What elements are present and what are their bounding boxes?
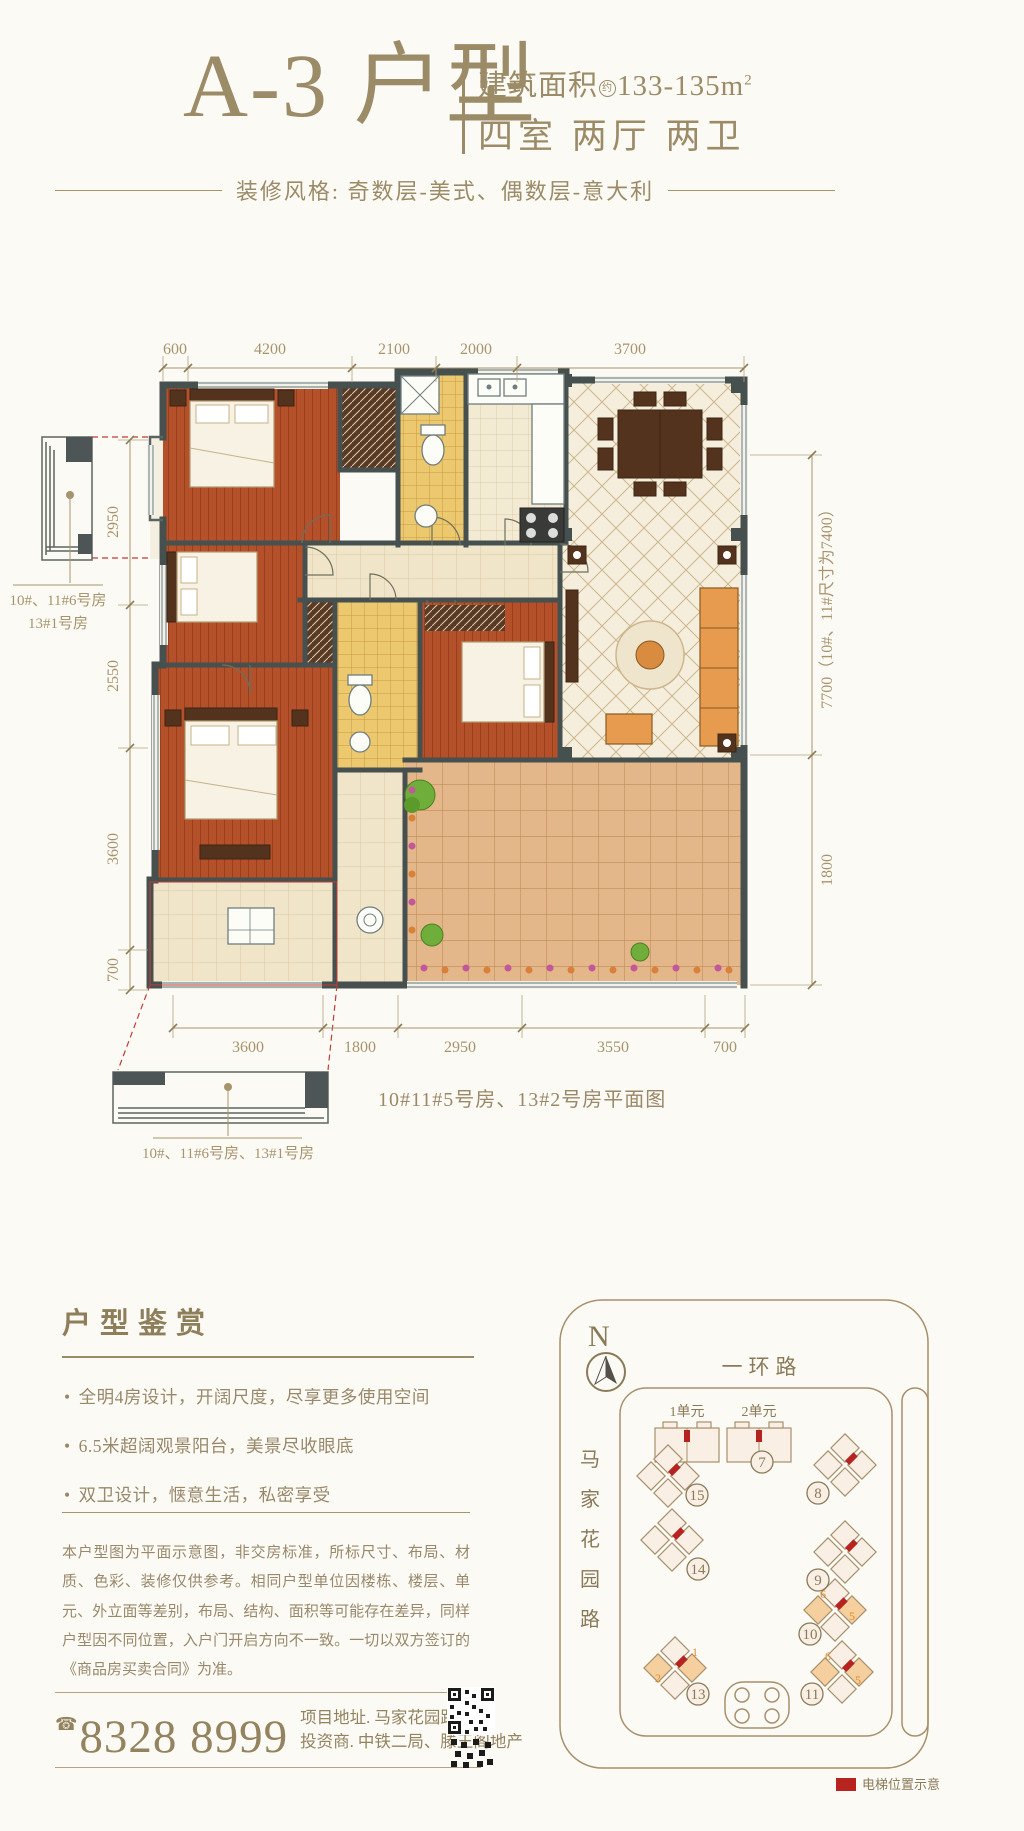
window bbox=[152, 695, 160, 850]
balcony-desk bbox=[228, 908, 274, 944]
svg-text:2100: 2100 bbox=[378, 341, 410, 358]
style-line: 装修风格: 奇数层-美式、偶数层-意大利 bbox=[236, 174, 654, 206]
pillar bbox=[731, 380, 744, 393]
armchair bbox=[606, 714, 652, 744]
corridor-floor bbox=[300, 543, 560, 600]
basin bbox=[350, 732, 370, 752]
rooms-line: 四室 两厅 两卫 bbox=[478, 108, 753, 159]
closet-2 bbox=[305, 600, 335, 665]
dim-right-sub: 1800 bbox=[819, 854, 836, 886]
svg-text:2550: 2550 bbox=[105, 660, 122, 692]
svg-text:14: 14 bbox=[691, 1562, 707, 1578]
svg-text:家: 家 bbox=[580, 1488, 600, 1511]
svg-text:3700: 3700 bbox=[614, 341, 646, 358]
footer-bar: ☎8328 8999 项目地址. 马家花园路16号 投资商. 中铁二局、滕王阁地… bbox=[55, 1692, 481, 1768]
svg-text:3600: 3600 bbox=[105, 833, 122, 865]
utility-floor bbox=[335, 770, 405, 985]
style-rule-left bbox=[55, 190, 222, 191]
review-rule bbox=[62, 1356, 474, 1358]
pillar bbox=[559, 747, 572, 760]
bay-bottom-label: 10#、11#6号房、13#1号房 bbox=[142, 1145, 314, 1162]
speaker bbox=[568, 546, 586, 564]
building-numbers: 7 15 8 14 9 10 13 11 bbox=[686, 1451, 829, 1705]
approx-circle-icon: 约 bbox=[599, 80, 616, 97]
svg-text:4200: 4200 bbox=[254, 341, 286, 358]
svg-text:马: 马 bbox=[580, 1449, 600, 1471]
tv-cabinet bbox=[566, 590, 578, 682]
legend-label: 电梯位置示意 bbox=[862, 1777, 940, 1792]
review-section: 户型鉴赏 全明4房设计，开阔尺度，尽享更多使用空间 6.5米超阔观景阳台，美景尽… bbox=[62, 1300, 474, 1531]
svg-text:5: 5 bbox=[855, 1673, 861, 1687]
area-line: 建筑面积约133-135m2 bbox=[478, 62, 753, 104]
north-indicator: N bbox=[587, 1320, 625, 1391]
floor-plan-figure: 10#、11#6号房 13#1号房 10#、11#6号房、13#1号房 10#1… bbox=[0, 290, 1024, 1180]
phone-number: ☎8328 8999 bbox=[55, 1687, 288, 1774]
svg-text:700: 700 bbox=[105, 958, 122, 982]
utility-fixtures bbox=[357, 907, 383, 933]
svg-text:花: 花 bbox=[580, 1528, 600, 1551]
svg-text:8: 8 bbox=[814, 1486, 822, 1502]
washer bbox=[357, 907, 383, 933]
pillar bbox=[731, 528, 744, 541]
sofa bbox=[700, 588, 738, 746]
bay-top-label-2: 13#1号房 bbox=[28, 615, 88, 632]
dim-right: 7700（10#、11#尺寸为7400） 1800 bbox=[750, 451, 836, 989]
svg-text:2000: 2000 bbox=[460, 341, 492, 358]
area-value: 133-135m bbox=[617, 70, 744, 102]
review-list: 全明4房设计，开阔尺度，尽享更多使用空间 6.5米超阔观景阳台，美景尽收眼底 双… bbox=[64, 1384, 474, 1507]
svg-text:路: 路 bbox=[580, 1608, 600, 1631]
header-info: 建筑面积约133-135m2 四室 两厅 两卫 bbox=[478, 62, 753, 159]
window bbox=[740, 575, 748, 745]
window bbox=[147, 445, 155, 515]
site-map: N 一环路 马 家 花 园 路 1单元 2单元 bbox=[540, 1280, 960, 1831]
elevator-legend-icon bbox=[836, 1778, 856, 1791]
svg-text:6: 6 bbox=[825, 1649, 831, 1663]
svg-text:15: 15 bbox=[690, 1488, 705, 1504]
svg-text:1800: 1800 bbox=[344, 1039, 376, 1056]
review-bullet: 双卫设计，惬意生活，私密享受 bbox=[64, 1482, 474, 1507]
speaker bbox=[718, 734, 736, 752]
svg-text:10: 10 bbox=[803, 1627, 818, 1643]
dim-right-main: 7700（10#、11#尺寸为7400） bbox=[818, 501, 836, 708]
svg-text:11: 11 bbox=[805, 1687, 819, 1703]
svg-text:2950: 2950 bbox=[105, 506, 122, 538]
unit-labels: 1单元 2单元 bbox=[670, 1404, 777, 1420]
area-label: 建筑面积 bbox=[478, 70, 598, 102]
terrace-railing bbox=[407, 981, 737, 989]
svg-text:1: 1 bbox=[692, 1645, 698, 1659]
svg-text:7: 7 bbox=[758, 1455, 766, 1471]
toilet bbox=[349, 685, 371, 715]
toilet bbox=[422, 435, 444, 465]
wardrobe-3 bbox=[425, 605, 505, 631]
svg-text:700: 700 bbox=[713, 1039, 737, 1056]
qr-code bbox=[447, 1687, 495, 1769]
title-divider bbox=[462, 66, 465, 154]
svg-text:3550: 3550 bbox=[597, 1039, 629, 1056]
svg-text:2950: 2950 bbox=[444, 1039, 476, 1056]
svg-text:1单元: 1单元 bbox=[670, 1404, 705, 1420]
window bbox=[595, 376, 725, 384]
disclaimer-text: 本户型图为平面示意图，非交房标准，所标尺寸、布局、材质、色彩、装修仅供参考。相同… bbox=[62, 1512, 470, 1685]
bay-detail-top: 10#、11#6号房 13#1号房 bbox=[10, 437, 107, 632]
plan-caption: 10#11#5号房、13#2号房平面图 bbox=[378, 1088, 666, 1111]
basin bbox=[415, 505, 437, 527]
coffee-table bbox=[636, 641, 664, 669]
dim-bottom: 3600 1800 2950 3550 700 bbox=[169, 995, 749, 1056]
review-bullet: 6.5米超阔观景阳台，美景尽收眼底 bbox=[64, 1433, 474, 1458]
window bbox=[198, 381, 328, 389]
svg-text:5: 5 bbox=[849, 1609, 855, 1623]
style-rule-right bbox=[668, 190, 835, 191]
svg-text:3600: 3600 bbox=[232, 1039, 264, 1056]
svg-text:13: 13 bbox=[691, 1687, 706, 1703]
window bbox=[740, 405, 748, 515]
review-bullet: 全明4房设计，开阔尺度，尽享更多使用空间 bbox=[64, 1384, 474, 1409]
area-sup: 2 bbox=[744, 72, 753, 88]
stove bbox=[520, 508, 564, 542]
svg-text:600: 600 bbox=[163, 341, 187, 358]
poster-page: A-3 户型 建筑面积约133-135m2 四室 两厅 两卫 装修风格: 奇数层… bbox=[0, 0, 1024, 1831]
bay-top-label-1: 10#、11#6号房 bbox=[10, 592, 107, 609]
road-top-label: 一环路 bbox=[722, 1355, 803, 1379]
svg-text:9: 9 bbox=[814, 1573, 822, 1589]
road-left-label: 马 家 花 园 路 bbox=[580, 1449, 600, 1631]
svg-text:2单元: 2单元 bbox=[742, 1404, 777, 1420]
review-title: 户型鉴赏 bbox=[62, 1300, 474, 1342]
speaker bbox=[718, 546, 736, 564]
north-label: N bbox=[588, 1320, 610, 1353]
phone-icon: ☎ bbox=[55, 1714, 78, 1734]
dim-left: 2950 2550 3600 700 bbox=[105, 436, 148, 994]
svg-text:园: 园 bbox=[580, 1569, 600, 1591]
style-row: 装修风格: 奇数层-美式、偶数层-意大利 bbox=[55, 174, 835, 206]
bay-detail-bottom: 10#、11#6号房、13#1号房 bbox=[113, 1072, 328, 1162]
svg-text:2: 2 bbox=[655, 1671, 661, 1685]
bed-2 bbox=[167, 552, 257, 622]
compass-arrow-icon bbox=[606, 1356, 617, 1384]
clubhouse bbox=[725, 1682, 789, 1728]
terrace-floor bbox=[405, 760, 744, 985]
map-legend: 电梯位置示意 bbox=[836, 1777, 940, 1792]
closet-1 bbox=[340, 385, 398, 470]
